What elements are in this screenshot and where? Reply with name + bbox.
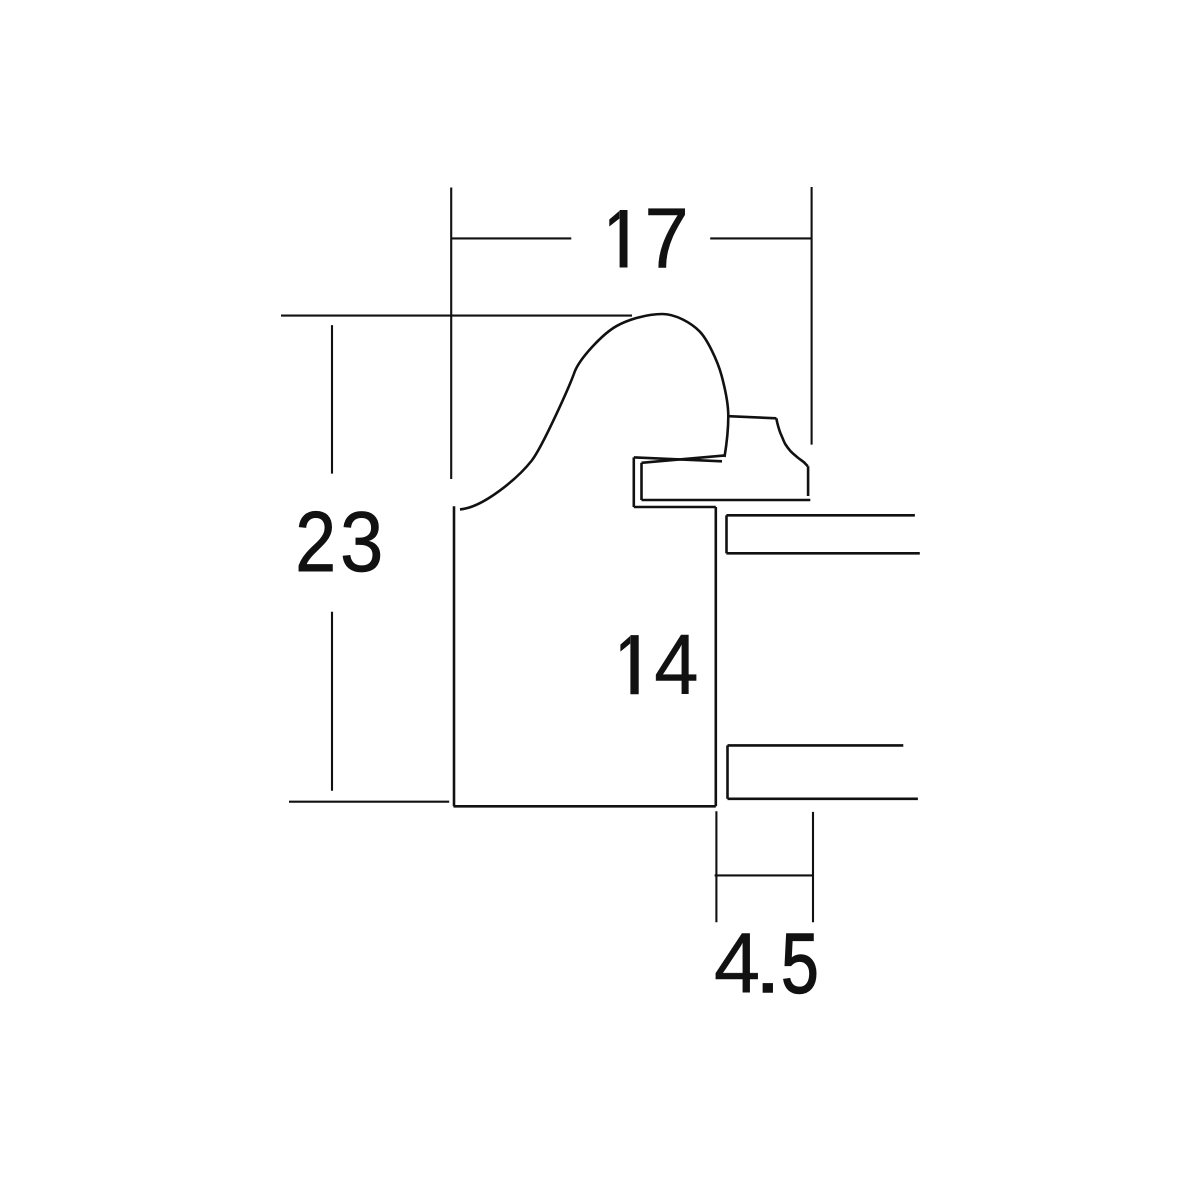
svg-text:7: 7 [644,191,688,286]
svg-text:2: 2 [295,494,336,589]
svg-text:5: 5 [781,917,819,1012]
svg-text:3: 3 [340,495,383,590]
svg-text:.: . [754,916,782,1011]
svg-text:4: 4 [654,619,698,713]
